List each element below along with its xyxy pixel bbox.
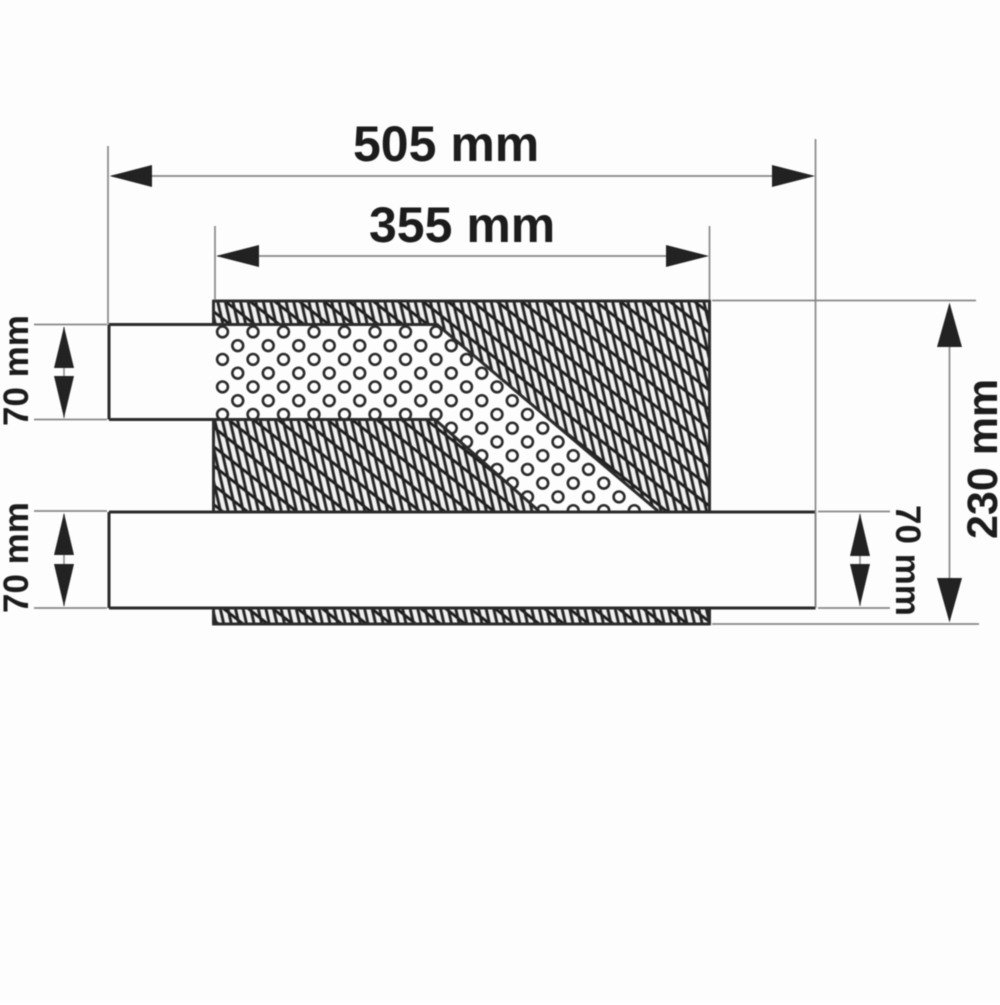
svg-text:70 mm: 70 mm (0, 502, 36, 613)
svg-text:230 mm: 230 mm (959, 379, 1000, 539)
svg-text:505 mm: 505 mm (353, 116, 539, 172)
svg-text:355 mm: 355 mm (369, 197, 555, 253)
svg-text:70 mm: 70 mm (888, 505, 927, 616)
svg-text:70 mm: 70 mm (0, 315, 36, 426)
